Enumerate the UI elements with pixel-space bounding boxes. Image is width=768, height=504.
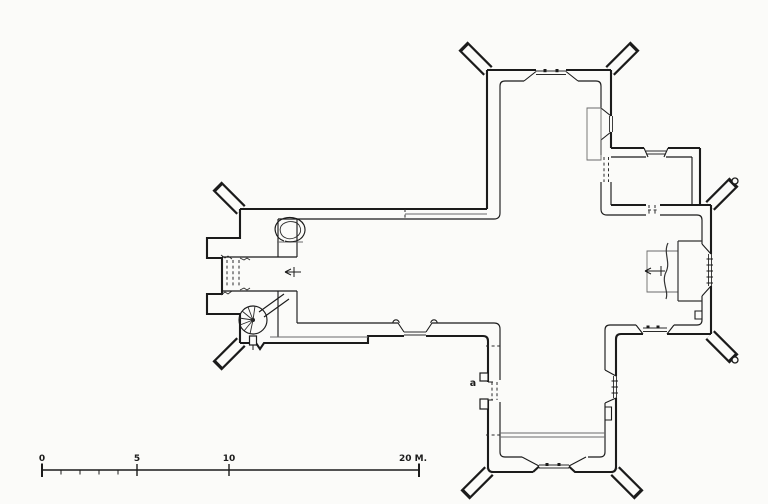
scale-label-10: 10 bbox=[223, 454, 236, 464]
scale-label-20: 20 M. bbox=[399, 454, 427, 464]
scale-label-0: 0 bbox=[39, 454, 45, 464]
tower-survey-arrow bbox=[285, 267, 301, 277]
floor-plan-page: a 0 5 10 20 M. bbox=[0, 0, 768, 504]
buttress-finial-ne bbox=[732, 178, 738, 184]
stair-newel-foot bbox=[250, 336, 257, 345]
scale-bar: 0 5 10 20 M. bbox=[39, 454, 427, 477]
buttress-finial-se bbox=[732, 357, 738, 363]
door-label-a: a bbox=[470, 378, 476, 389]
altar-survey-arrow bbox=[645, 266, 665, 276]
font-outline bbox=[275, 218, 305, 242]
church-floor-plan: a 0 5 10 20 M. bbox=[0, 0, 768, 504]
scale-label-5: 5 bbox=[134, 454, 140, 464]
exterior-walls bbox=[207, 70, 711, 472]
door-jamb-marks bbox=[221, 255, 493, 409]
wall-notches bbox=[393, 311, 702, 420]
spiral-staircase bbox=[239, 294, 289, 350]
mullion-squares bbox=[544, 69, 660, 466]
window-rungs bbox=[612, 259, 714, 393]
glazing-lines bbox=[404, 71, 712, 468]
window-openings bbox=[398, 72, 711, 467]
dashed-openings bbox=[227, 157, 658, 435]
